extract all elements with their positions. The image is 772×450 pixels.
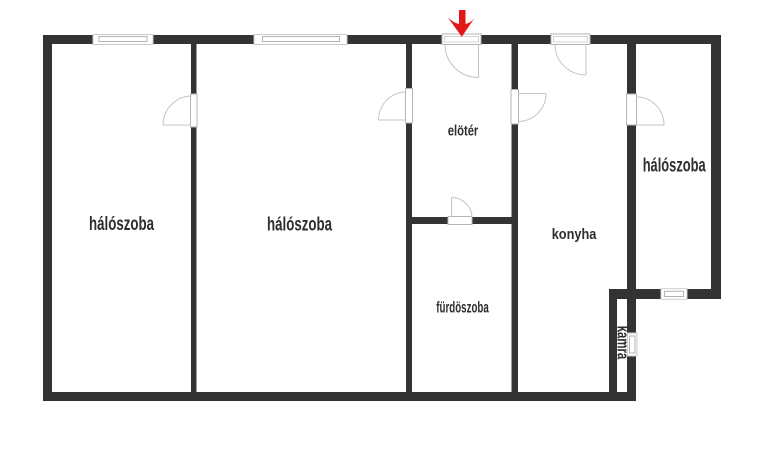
svg-text:konyha: konyha [552,226,597,243]
svg-text:fürdöszoba: fürdöszoba [436,300,489,317]
svg-text:hálószoba: hálószoba [267,214,332,235]
svg-text:kamra: kamra [614,326,633,360]
svg-text:hálószoba: hálószoba [89,214,154,235]
svg-text:elötér: elötér [448,123,479,140]
svg-text:hálószoba: hálószoba [643,156,706,177]
